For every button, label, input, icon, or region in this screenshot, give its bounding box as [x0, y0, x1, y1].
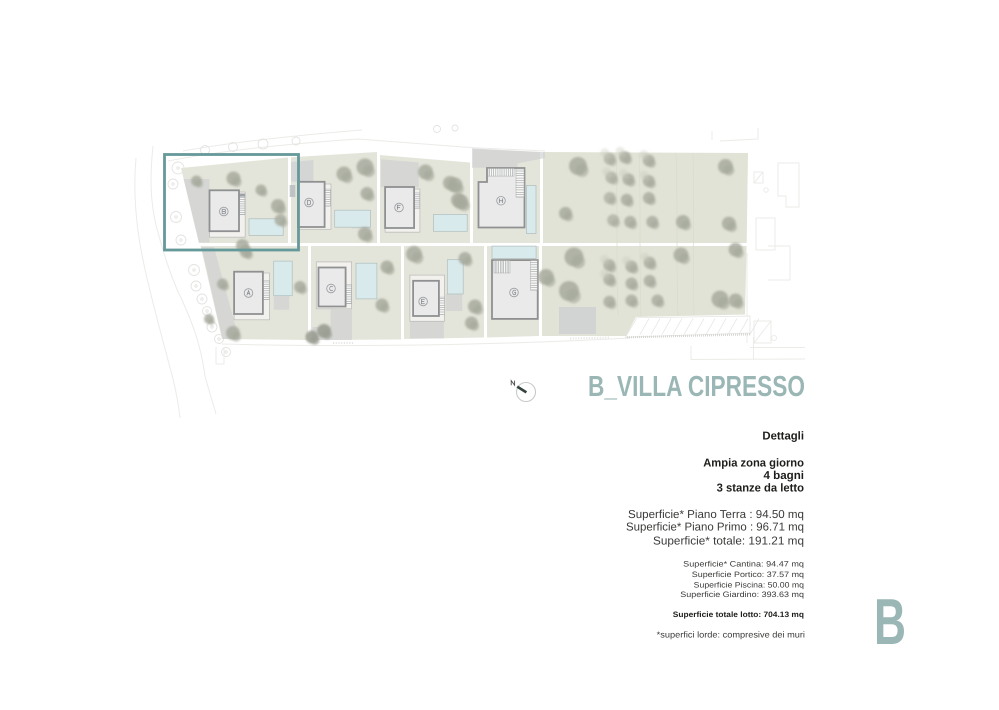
svg-text:Superficie totale lotto: 704.1: Superficie totale lotto: 704.13 mq — [673, 610, 804, 619]
svg-text:Superficie* totale: 191.21 mq: Superficie* totale: 191.21 mq — [653, 536, 804, 548]
svg-text:Superficie Giardino: 393.63 mq: Superficie Giardino: 393.63 mq — [680, 590, 804, 599]
svg-text:Superficie Portico: 37.57 mq: Superficie Portico: 37.57 mq — [692, 570, 804, 579]
svg-text:B_VILLA CIPRESSO: B_VILLA CIPRESSO — [588, 371, 805, 403]
svg-text:Ampia zona giorno: Ampia zona giorno — [703, 458, 804, 470]
svg-text:Superficie* Cantina: 94.47 mq: Superficie* Cantina: 94.47 mq — [683, 560, 804, 569]
svg-text:4 bagni: 4 bagni — [764, 470, 805, 482]
svg-text:Dettagli: Dettagli — [762, 430, 804, 442]
svg-text:3 stanze da letto: 3 stanze da letto — [717, 483, 804, 495]
svg-text:*superfici lorde: compresive d: *superfici lorde: compresive dei muri — [657, 630, 805, 640]
svg-text:Superficie Piscina: 50.00 mq: Superficie Piscina: 50.00 mq — [694, 581, 804, 590]
svg-text:Superficie* Piano Terra : 94.5: Superficie* Piano Terra : 94.50 mq — [628, 509, 804, 521]
svg-text:Superficie* Piano Primo : 96.7: Superficie* Piano Primo : 96.71 mq — [626, 522, 804, 534]
svg-text:B: B — [874, 585, 906, 658]
